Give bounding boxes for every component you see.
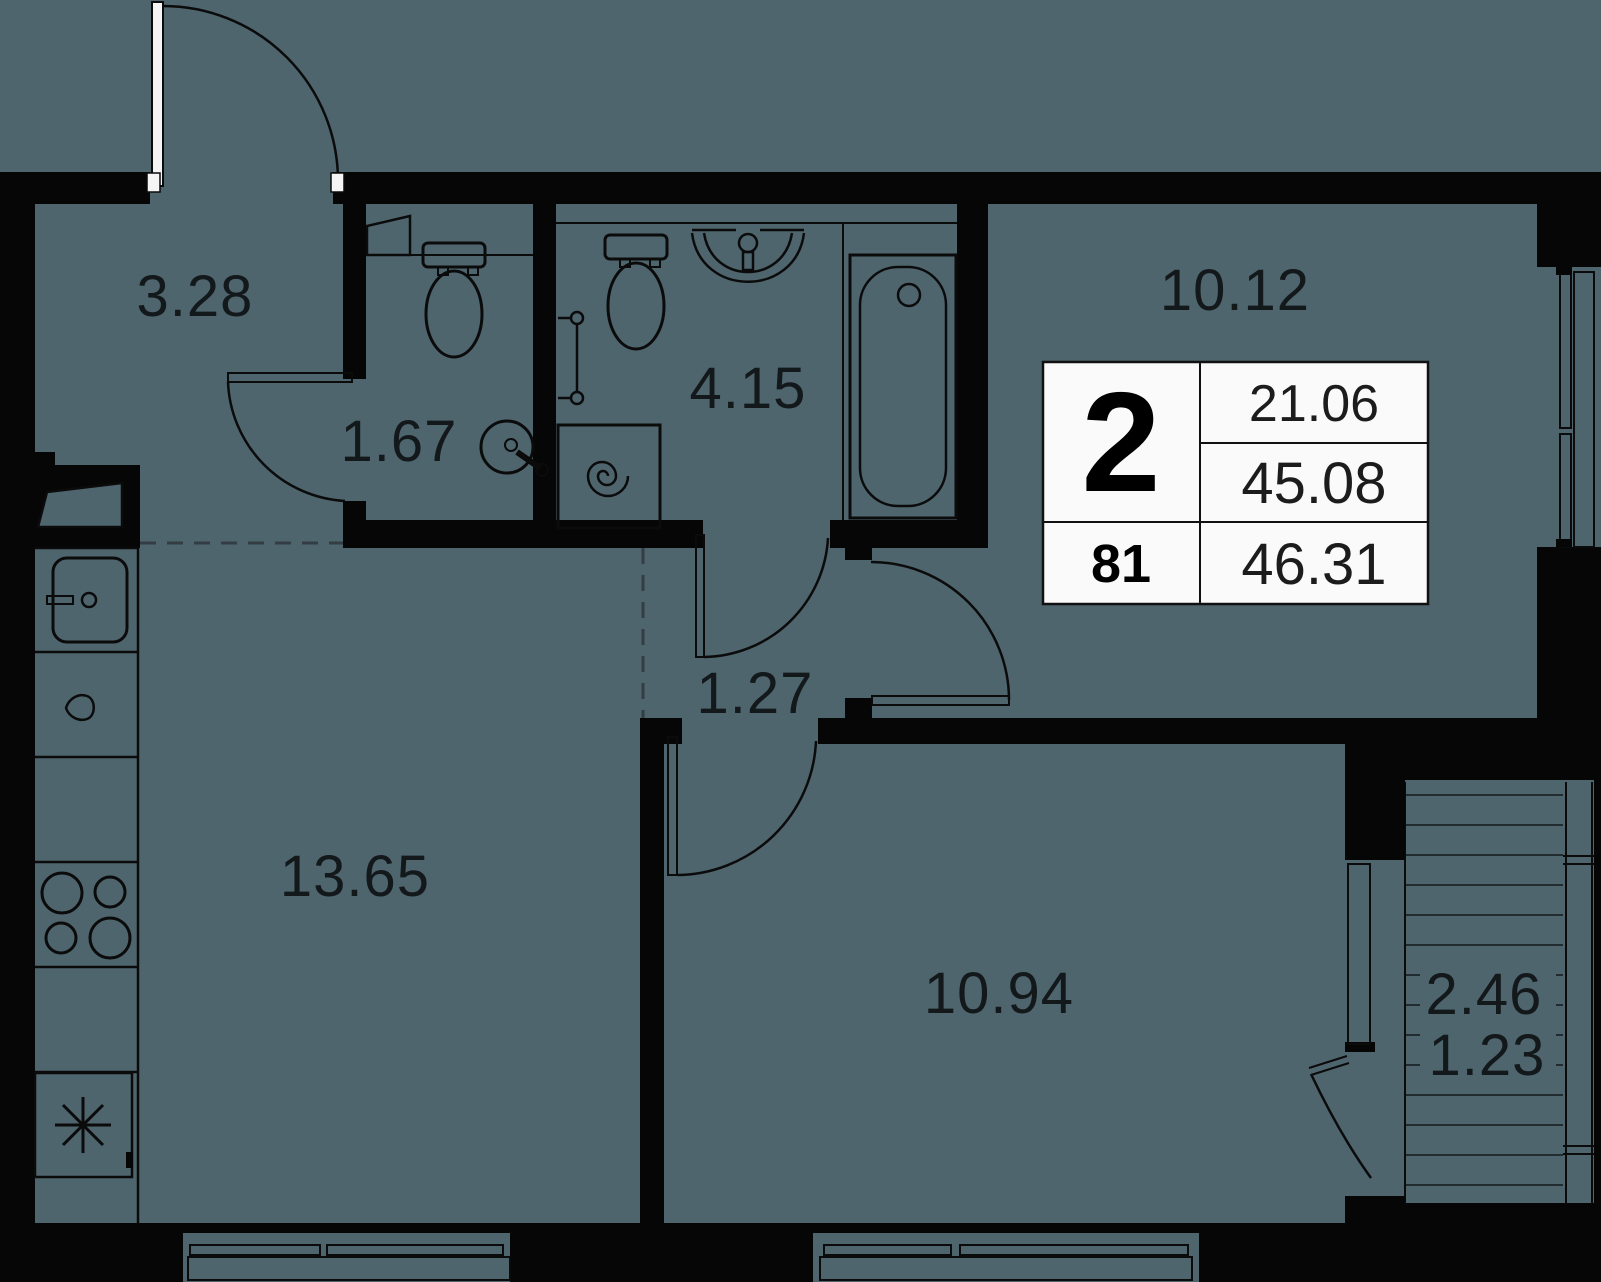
entry-door-jamb-left — [147, 173, 160, 192]
label-corridor: 1.27 — [697, 661, 814, 726]
wall-bath-living — [957, 204, 988, 520]
wall-top-main — [333, 172, 1601, 204]
wall-bath-bottom-right — [830, 520, 988, 548]
wall-balcony-top — [1345, 744, 1601, 780]
wall-right-top — [1537, 204, 1601, 267]
floorplan-canvas: 3.28 1.67 4.15 10.12 1.27 13.65 10.94 2.… — [0, 0, 1601, 1282]
wall-bath-bottom-left — [343, 520, 703, 548]
entry-door-leaf — [152, 2, 163, 186]
wall-bedroom-right-lower — [1345, 1196, 1405, 1228]
info-area-without-balcony: 45.08 — [1241, 451, 1386, 516]
wall-balcony-bottom — [1405, 1203, 1601, 1282]
wall-wc-left-lower — [343, 501, 366, 548]
wall-living-bottom — [818, 718, 1601, 744]
living-window-jamb-top — [1556, 267, 1572, 275]
wall-bottom-2 — [510, 1223, 813, 1282]
wall-left — [0, 172, 35, 1282]
living-window-jamb-bottom — [1556, 539, 1572, 547]
wall-wc-left-upper — [343, 204, 366, 379]
label-bathroom: 4.15 — [690, 356, 807, 421]
snowflake-icon — [55, 1097, 111, 1153]
info-apartment-number: 81 — [1091, 534, 1151, 594]
info-card: 2 81 21.06 45.08 46.31 — [1043, 362, 1428, 604]
info-room-count: 2 — [1082, 363, 1161, 522]
label-balcony-full: 2.46 — [1426, 962, 1543, 1027]
label-balcony-reduced: 1.23 — [1429, 1023, 1546, 1088]
bedroom-window-lintel — [813, 1223, 1199, 1233]
fridge-hinge — [126, 1152, 133, 1168]
floorplan-page: 3.28 1.67 4.15 10.12 1.27 13.65 10.94 2.… — [0, 0, 1601, 1282]
wall-kitchen-bedroom — [640, 718, 664, 1223]
info-total-area: 46.31 — [1241, 532, 1386, 597]
label-living-room: 10.12 — [1160, 258, 1310, 323]
wall-bottom-1 — [0, 1223, 183, 1282]
wall-balcony-right — [1594, 780, 1601, 1203]
label-hall: 3.28 — [137, 264, 254, 329]
wall-corridor-living-bottom — [845, 698, 872, 722]
info-living-area: 21.06 — [1249, 375, 1379, 433]
kitchen-window-lintel — [183, 1223, 510, 1233]
label-wc: 1.67 — [341, 409, 458, 474]
entry-door-jamb-right — [331, 173, 344, 192]
wall-right-mid — [1537, 547, 1601, 722]
label-bedroom: 10.94 — [924, 961, 1074, 1026]
label-kitchen: 13.65 — [280, 844, 430, 909]
